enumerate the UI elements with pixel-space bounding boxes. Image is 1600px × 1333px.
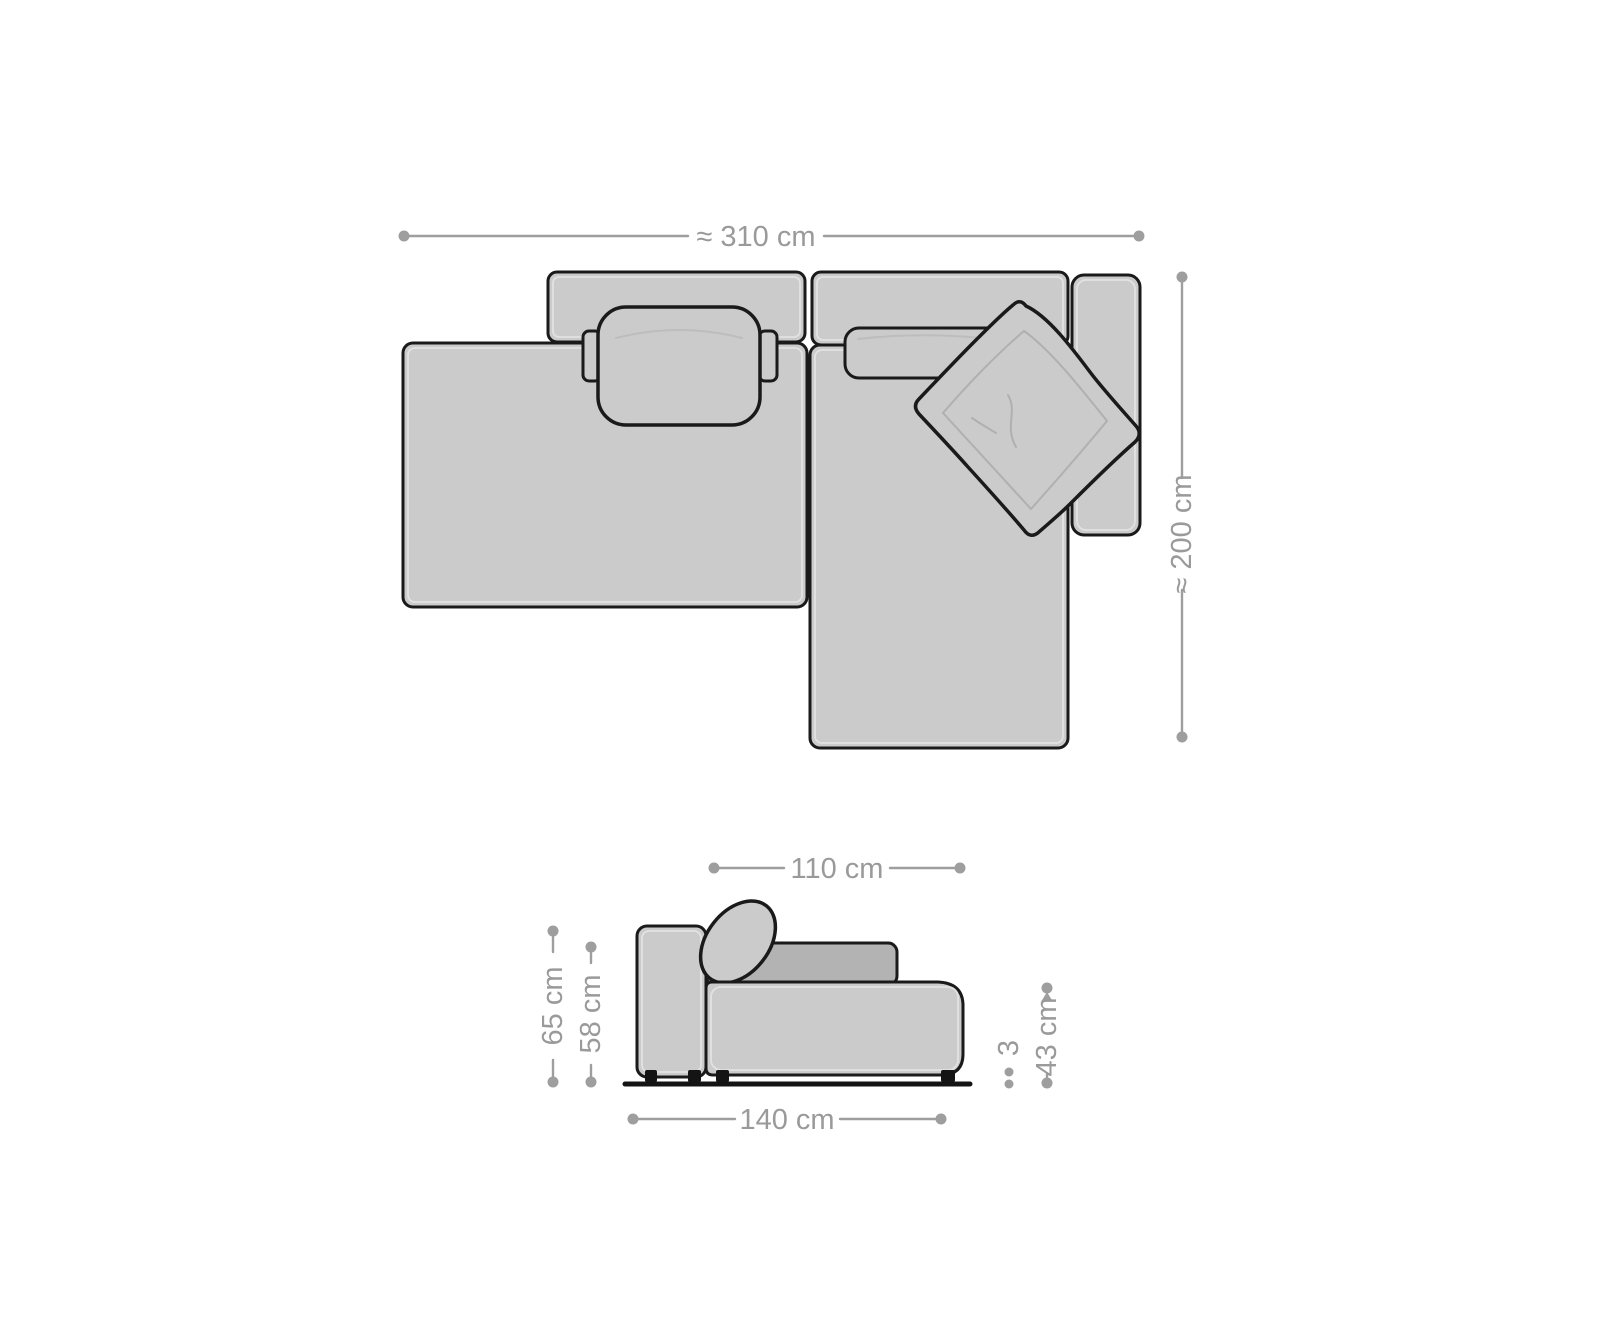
dimension-endpoint-dot bbox=[548, 1077, 559, 1088]
dimension-total-depth: 140 cm bbox=[628, 1104, 947, 1136]
seat-base bbox=[706, 982, 963, 1075]
dimension-endpoint-dot bbox=[709, 863, 720, 874]
top-view: ≈ 310 cm ≈ 200 cm bbox=[399, 221, 1199, 748]
dimension-depth: ≈ 200 cm bbox=[1166, 272, 1198, 743]
dimension-seat-depth-label: 110 cm bbox=[791, 853, 884, 885]
furniture-dimension-diagram: ≈ 310 cm ≈ 200 cm bbox=[0, 0, 1600, 1333]
dimension-width-label: ≈ 310 cm bbox=[696, 221, 815, 253]
sofa-dimension-drawing: ≈ 310 cm ≈ 200 cm bbox=[0, 0, 1600, 1333]
dimension-endpoint-dot bbox=[586, 942, 597, 953]
dimension-endpoint-dot bbox=[1042, 1078, 1053, 1089]
dimension-foot-height: 3 bbox=[993, 1040, 1025, 1089]
foot bbox=[688, 1070, 701, 1082]
dimension-endpoint-dot bbox=[1177, 272, 1188, 283]
dimension-seat-height: 43 cm bbox=[1031, 983, 1063, 1089]
seat-base-shape bbox=[706, 982, 963, 1075]
dimension-endpoint-dot bbox=[586, 1077, 597, 1088]
dimension-back-height-label: 58 cm bbox=[575, 975, 607, 1054]
headrest-cushion bbox=[583, 307, 777, 425]
foot bbox=[716, 1070, 729, 1082]
dimension-total-depth-label: 140 cm bbox=[739, 1104, 834, 1136]
dimension-endpoint-dot bbox=[399, 231, 410, 242]
dimension-total-height-label: 65 cm bbox=[537, 967, 569, 1046]
dimension-seat-depth: 110 cm bbox=[709, 853, 966, 885]
foot bbox=[645, 1070, 657, 1082]
dimension-width: ≈ 310 cm bbox=[399, 221, 1145, 253]
dimension-depth-label: ≈ 200 cm bbox=[1166, 474, 1198, 593]
dimension-endpoint-dot bbox=[1005, 1068, 1014, 1077]
back-panel bbox=[637, 926, 706, 1077]
dimension-endpoint-dot bbox=[1177, 732, 1188, 743]
dimension-endpoint-dot bbox=[936, 1114, 947, 1125]
dimension-endpoint-dot bbox=[548, 926, 559, 937]
dimension-total-height: 65 cm bbox=[537, 926, 569, 1088]
dimension-endpoint-dot bbox=[1134, 231, 1145, 242]
headrest-body bbox=[598, 307, 760, 425]
dimension-endpoint-dot bbox=[628, 1114, 639, 1125]
dimension-foot-height-label: 3 bbox=[993, 1040, 1025, 1056]
dimension-endpoint-dot bbox=[955, 863, 966, 874]
dimension-endpoint-dot bbox=[1005, 1080, 1014, 1089]
dimension-back-height: 58 cm bbox=[575, 942, 607, 1088]
dimension-seat-height-label: 43 cm bbox=[1031, 998, 1063, 1077]
back-panel-shape bbox=[637, 926, 706, 1077]
dimension-endpoint-dot bbox=[1042, 983, 1053, 994]
foot bbox=[941, 1070, 955, 1082]
side-view: 110 cm 65 cm 58 cm 3 bbox=[537, 853, 1063, 1136]
